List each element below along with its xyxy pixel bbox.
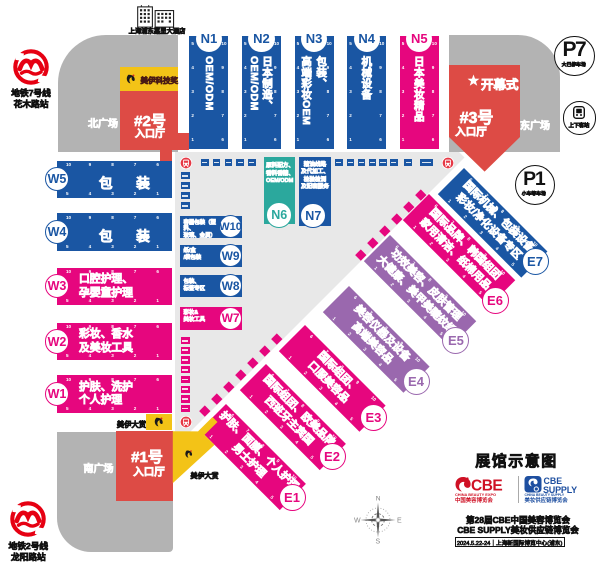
svg-text:CHINA BEAUTY SUPPLY: CHINA BEAUTY SUPPLY [524, 493, 564, 497]
svg-text:美妆供应链博览会: 美妆供应链博览会 [524, 496, 568, 504]
svg-text:E: E [397, 517, 402, 524]
svg-text:N: N [375, 496, 380, 503]
svg-text:中国美容博览会: 中国美容博览会 [455, 496, 493, 504]
svg-text:S: S [375, 538, 380, 544]
svg-text:W: W [354, 517, 361, 524]
svg-text:CHINA BEAUTY EXPO: CHINA BEAUTY EXPO [455, 491, 496, 496]
